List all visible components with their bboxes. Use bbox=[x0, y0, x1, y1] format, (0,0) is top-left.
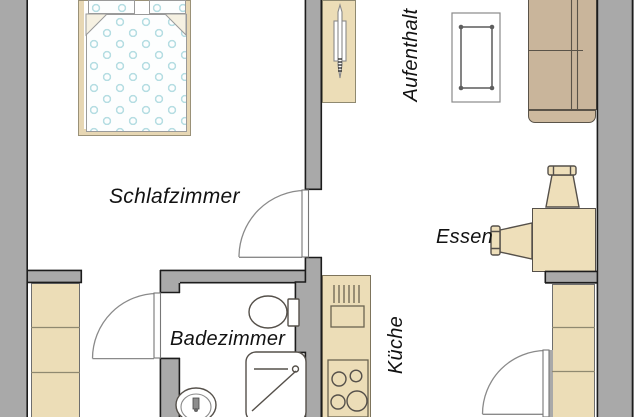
shower bbox=[246, 352, 306, 417]
door-bedroom bbox=[239, 190, 309, 257]
room-label-badezimmer: Badezimmer bbox=[170, 329, 285, 349]
cabinet-left bbox=[31, 283, 80, 417]
pillow-left bbox=[88, 0, 135, 14]
cabinet-right bbox=[552, 284, 595, 417]
wardrobe bbox=[322, 0, 356, 103]
dining-table bbox=[532, 208, 596, 272]
pillow-right bbox=[149, 0, 186, 14]
room-label-schlafzimmer: Schlafzimmer bbox=[109, 186, 240, 207]
toilet bbox=[249, 296, 299, 328]
floor-plan: Schlafzimmer Badezimmer Essen Küche Aufe… bbox=[0, 0, 640, 417]
door-bathroom bbox=[93, 293, 161, 359]
chair-left bbox=[491, 223, 532, 259]
duvet bbox=[86, 14, 187, 132]
door-entrance bbox=[483, 350, 550, 417]
sofa-armrest bbox=[528, 110, 596, 123]
cabinet-shelves bbox=[31, 328, 595, 373]
chair-top bbox=[546, 166, 579, 207]
sofa bbox=[528, 0, 597, 110]
side-table bbox=[452, 13, 500, 102]
room-label-essen: Essen bbox=[436, 227, 493, 247]
bed bbox=[78, 0, 191, 136]
washbasin bbox=[176, 388, 216, 417]
room-label-kueche: Küche bbox=[386, 316, 406, 374]
kitchen-counter bbox=[322, 275, 371, 417]
room-label-aufenthalt: Aufenthalt bbox=[401, 8, 421, 101]
